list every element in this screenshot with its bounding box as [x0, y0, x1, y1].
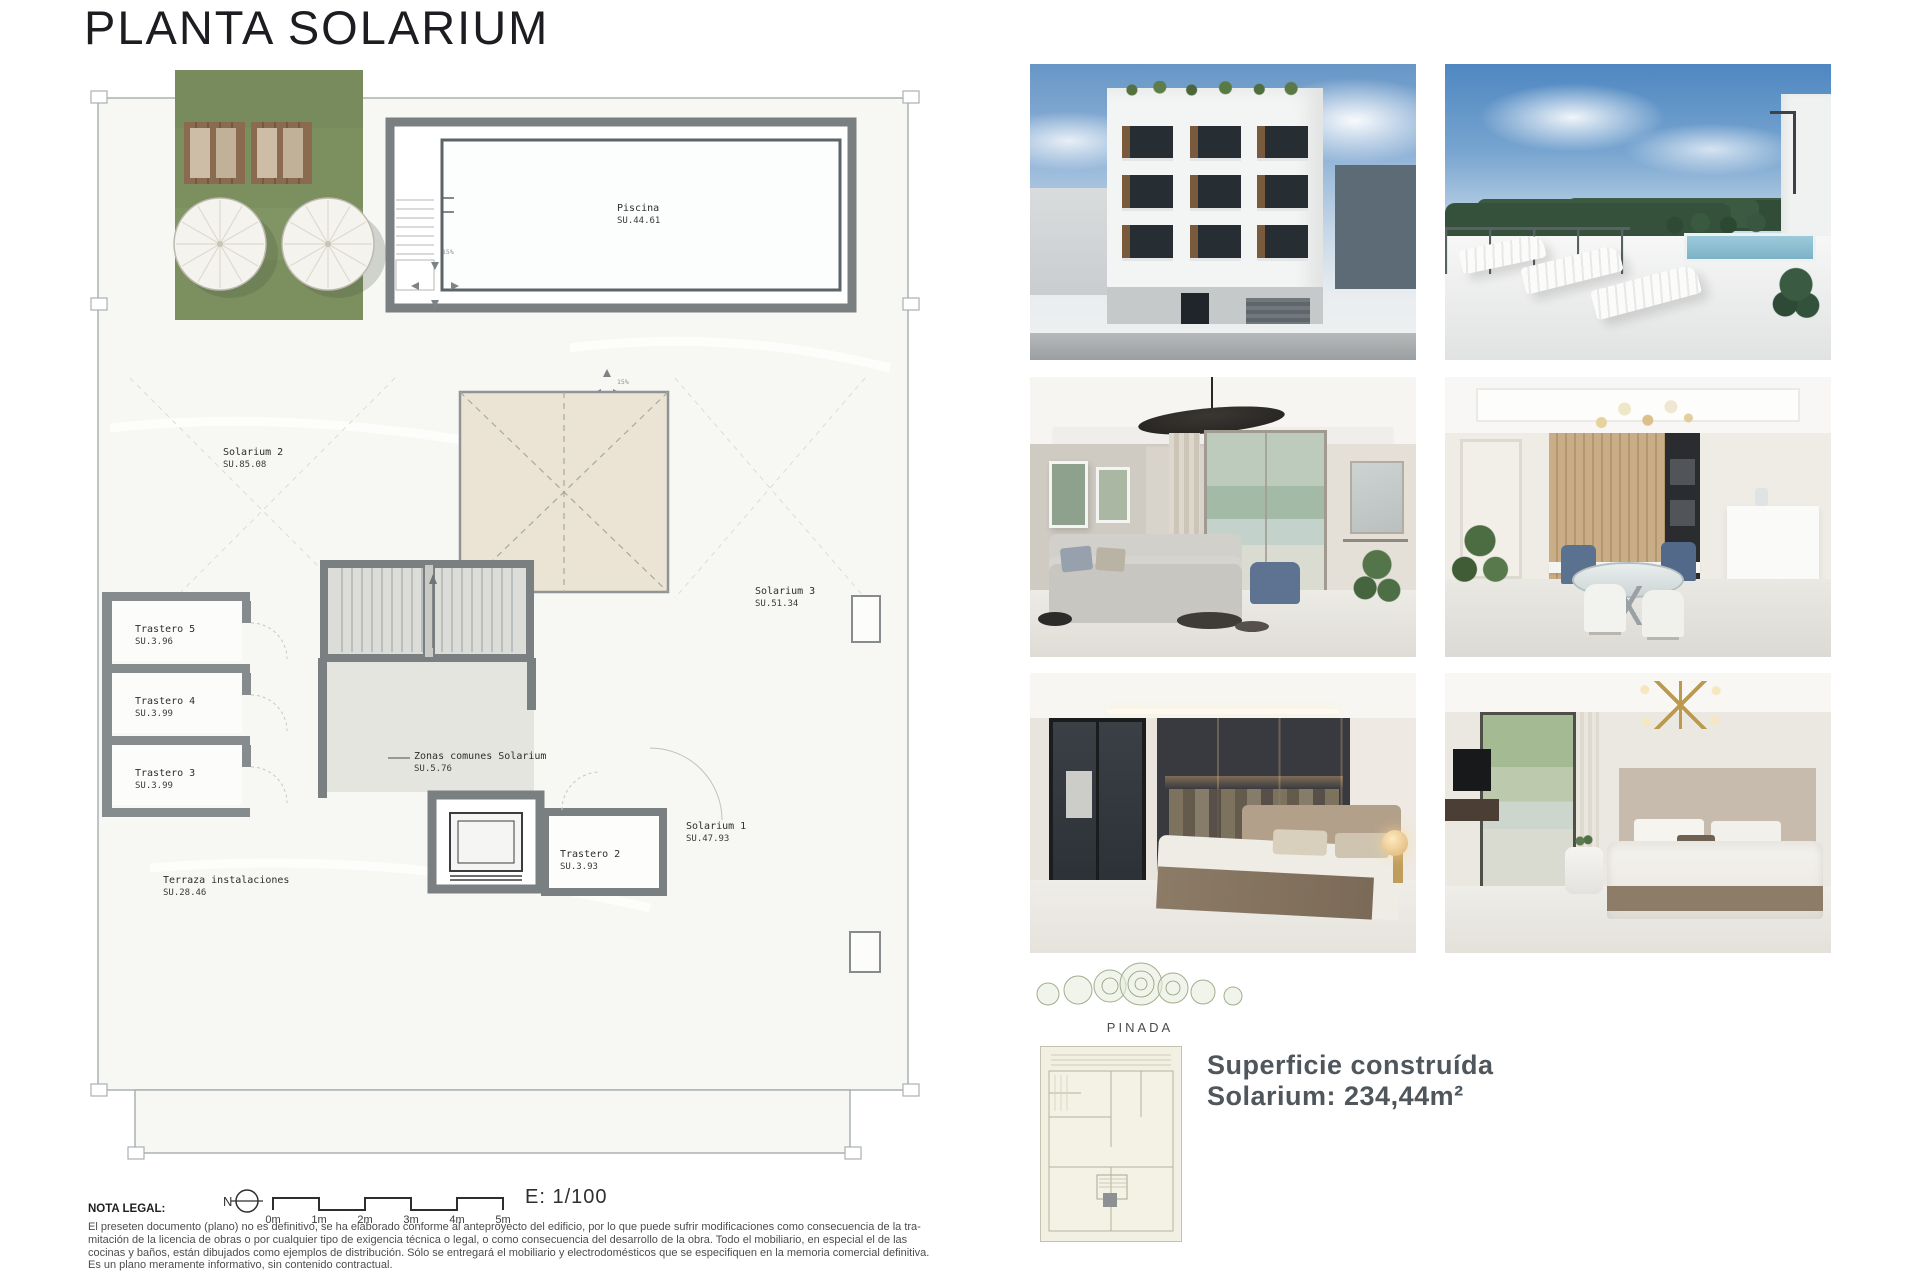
pendant-stem	[1211, 377, 1213, 411]
page-title: PLANTA SOLARIUM	[84, 0, 549, 55]
partition-frame	[1096, 722, 1099, 888]
room-su: SU.3.99	[135, 709, 195, 720]
cove-light	[1107, 709, 1339, 714]
building-facade	[1107, 88, 1323, 325]
room-su: SU.28.46	[163, 888, 289, 899]
room-name: Zonas comunes Solarium	[414, 751, 546, 762]
room-label-terraza: Terraza instalaciones SU.28.46	[163, 875, 289, 899]
coffee-table	[1177, 612, 1243, 629]
legal-heading: NOTA LEGAL:	[88, 1203, 968, 1215]
summary-line-1: Superficie construída	[1207, 1050, 1494, 1081]
legal-line: mitación de la licencia de obras o por c…	[88, 1234, 968, 1247]
sphere-lamp	[1382, 830, 1408, 856]
tv	[1453, 749, 1492, 791]
side-table	[1235, 621, 1270, 632]
potted-tree	[1769, 265, 1823, 330]
armchair	[1250, 562, 1300, 604]
room-su: SU.47.93	[686, 834, 746, 845]
bed-runner	[1607, 886, 1823, 911]
room-name: Trastero 3	[135, 768, 195, 779]
ground-floor	[1107, 287, 1323, 325]
room-name: Trastero 5	[135, 624, 195, 635]
pinada-trees-drawing	[1030, 958, 1252, 1014]
cloud	[1623, 123, 1801, 176]
pinada-label: PINADA	[1030, 1020, 1250, 1035]
sputnik-pendant	[1638, 681, 1723, 729]
chair-white	[1642, 590, 1684, 638]
pool	[1684, 233, 1815, 263]
console-table	[1343, 539, 1409, 542]
built-area-summary: Superficie construída Solarium: 234,44m²	[1207, 1050, 1494, 1112]
legal-note: NOTA LEGAL: El preseten documento (plano…	[88, 1203, 968, 1272]
room-name: Solarium 3	[755, 586, 815, 597]
window-row	[1122, 225, 1308, 261]
window	[1257, 126, 1308, 162]
entry-door	[1181, 293, 1209, 325]
window	[1257, 175, 1308, 211]
sideboard	[1445, 799, 1499, 821]
legal-line: cocinas y baños, están dibujados como ej…	[88, 1247, 968, 1260]
oven	[1670, 459, 1694, 485]
towel	[1066, 771, 1093, 817]
room-su: SU.85.08	[223, 460, 283, 471]
shower-arm	[1770, 111, 1796, 114]
window	[1190, 126, 1241, 162]
slope-label: 15%	[617, 378, 629, 386]
room-name: Trastero 4	[135, 696, 195, 707]
window-row	[1122, 175, 1308, 211]
photo-dining-kitchen	[1445, 377, 1831, 657]
window	[1122, 175, 1173, 211]
street	[1030, 333, 1416, 360]
room-label-trastero3: Trastero 3 SU.3.99	[135, 768, 195, 792]
cushion	[1095, 547, 1125, 572]
pendant-bulbs	[1584, 391, 1700, 436]
room-su: SU.5.76	[414, 764, 546, 775]
window	[1190, 175, 1241, 211]
mini-site-plan	[1040, 1046, 1182, 1242]
planters	[1661, 209, 1777, 236]
room-name: Terraza instalaciones	[163, 875, 289, 886]
plant-sprig	[1574, 835, 1593, 847]
pillow	[1335, 833, 1389, 858]
room-label-zonas-comunes: Zonas comunes Solarium SU.5.76	[414, 751, 546, 775]
room-label-solarium1: Solarium 1 SU.47.93	[686, 821, 746, 845]
neighbor-building-right	[1335, 165, 1416, 289]
room-name: Piscina	[617, 203, 659, 214]
neighbor-building-left	[1030, 188, 1111, 295]
legal-line: El preseten documento (plano) no es defi…	[88, 1221, 968, 1234]
wall-art	[1049, 461, 1088, 528]
photo-rooftop-terrace	[1445, 64, 1831, 360]
shower-pole	[1793, 111, 1796, 194]
photo-bedroom-window	[1445, 673, 1831, 953]
room-label-trastero2: Trastero 2 SU.3.93	[560, 849, 620, 873]
room-name: Trastero 2	[560, 849, 620, 860]
room-name: Solarium 1	[686, 821, 746, 832]
cushion	[1060, 545, 1093, 572]
room-su: SU.3.93	[560, 862, 620, 873]
window	[1122, 225, 1173, 261]
roof-plants	[1116, 81, 1315, 96]
window-row	[1122, 126, 1308, 162]
room-su: SU.3.99	[135, 781, 195, 792]
slope-label: 15%	[442, 248, 454, 256]
window	[1257, 225, 1308, 261]
room-label-solarium2: Solarium 2 SU.85.08	[223, 447, 283, 471]
window	[1122, 126, 1173, 162]
pinada-trees	[1030, 958, 1252, 1014]
mini-site-plan-drawing	[1041, 1047, 1181, 1241]
photo-bedroom-wardrobe	[1030, 673, 1416, 953]
room-label-trastero4: Trastero 4 SU.3.99	[135, 696, 195, 720]
plant	[1449, 517, 1511, 612]
pillow	[1273, 829, 1328, 856]
chair-white	[1584, 584, 1626, 632]
room-su: SU.3.96	[135, 637, 195, 648]
pedestal-table	[1565, 847, 1604, 895]
room-label-solarium3: Solarium 3 SU.51.34	[755, 586, 815, 610]
photo-building-exterior	[1030, 64, 1416, 360]
legal-line: Es un plano meramente informativo, sin c…	[88, 1259, 968, 1272]
room-label-trastero5: Trastero 5 SU.3.96	[135, 624, 195, 648]
glass-partition	[1049, 718, 1146, 892]
room-label-piscina: Piscina SU.44.61	[617, 203, 660, 227]
room-su: SU.44.61	[617, 216, 660, 227]
floor-plan: Piscina SU.44.61 Solarium 2 SU.85.08 Sol…	[90, 48, 920, 1165]
vase	[1755, 488, 1768, 506]
wall-art	[1096, 467, 1131, 523]
mirror	[1350, 461, 1404, 534]
plant	[1350, 545, 1404, 623]
photo-living-room	[1030, 377, 1416, 657]
window	[1190, 225, 1241, 261]
wardrobe-light	[1165, 776, 1343, 789]
summary-line-2: Solarium: 234,44m²	[1207, 1081, 1494, 1112]
room-su: SU.51.34	[755, 599, 815, 610]
elevator	[432, 795, 540, 889]
oven	[1670, 500, 1694, 526]
room-name: Solarium 2	[223, 447, 283, 458]
garage-door	[1246, 298, 1311, 325]
